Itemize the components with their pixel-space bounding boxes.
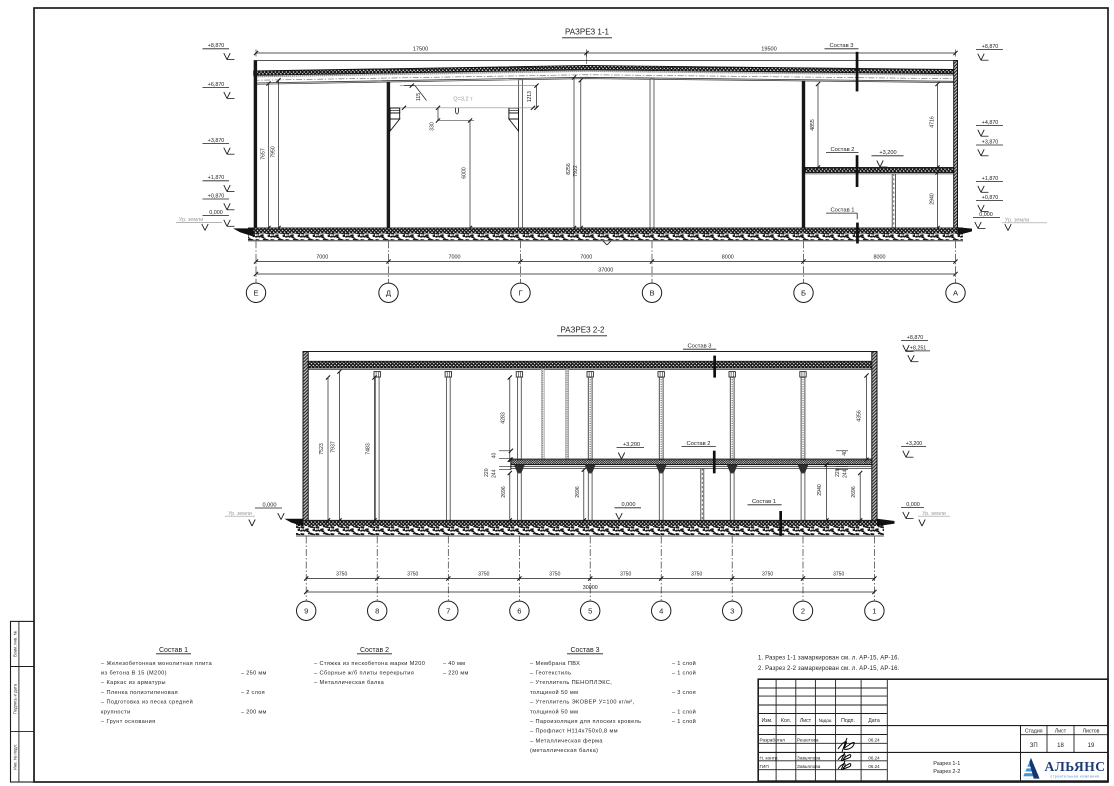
svg-text:+6,870: +6,870	[208, 82, 225, 88]
svg-text:Дата: Дата	[868, 718, 880, 724]
svg-text:8256: 8256	[566, 163, 572, 175]
svg-text:Лист: Лист	[800, 718, 812, 724]
svg-text:18: 18	[1057, 743, 1064, 749]
svg-text:РАЗРЕЗ 2-2: РАЗРЕЗ 2-2	[561, 326, 606, 335]
svg-text:Состав 3: Состав 3	[829, 43, 853, 49]
svg-text:– Металлическая балка: – Металлическая балка	[314, 680, 385, 686]
svg-text:7937: 7937	[331, 441, 337, 453]
svg-text:Подп.: Подп.	[841, 718, 855, 724]
svg-text:– Утеплитель ЭКОВЕР У=100 кг/м: – Утеплитель ЭКОВЕР У=100 кг/м²,	[530, 700, 635, 706]
svg-text:37000: 37000	[598, 268, 613, 274]
svg-text:7523: 7523	[319, 443, 325, 455]
svg-text:Состав 3: Состав 3	[570, 647, 599, 654]
svg-text:1213: 1213	[527, 91, 533, 102]
svg-text:РАЗРЕЗ 1-1: РАЗРЕЗ 1-1	[565, 28, 610, 37]
svg-text:06.24: 06.24	[868, 755, 880, 760]
svg-text:+8,870: +8,870	[208, 43, 225, 49]
svg-text:06.24: 06.24	[868, 738, 880, 743]
svg-text:(металлическая балка): (металлическая балка)	[530, 748, 598, 754]
svg-text:330: 330	[430, 122, 436, 131]
svg-text:строительная компания: строительная компания	[1050, 775, 1099, 779]
svg-text:– Геотекстиль: – Геотекстиль	[530, 671, 571, 677]
svg-text:– 3 слоя: – 3 слоя	[672, 690, 696, 696]
svg-text:2940: 2940	[930, 193, 936, 205]
svg-text:4356: 4356	[857, 410, 863, 422]
svg-text:3750: 3750	[833, 572, 844, 578]
svg-text:Взам. инв. №: Взам. инв. №	[12, 631, 17, 657]
svg-text:2940: 2940	[817, 484, 823, 496]
svg-text:115: 115	[416, 93, 422, 101]
svg-text:Г: Г	[518, 289, 522, 298]
svg-text:Состав 1: Состав 1	[752, 499, 776, 505]
svg-text:– Подготовка из песка средней: – Подготовка из песка средней	[101, 699, 193, 706]
svg-text:19: 19	[1088, 743, 1095, 749]
svg-text:Подпись и дата: Подпись и дата	[12, 683, 17, 714]
svg-text:3: 3	[730, 607, 734, 616]
svg-text:– 2 слоя: – 2 слоя	[241, 690, 265, 696]
svg-text:3750: 3750	[691, 572, 702, 578]
svg-text:2696: 2696	[575, 486, 581, 498]
svg-text:– Металлическая ферма: – Металлическая ферма	[530, 738, 603, 744]
svg-text:№док.: №док.	[818, 718, 832, 724]
svg-text:– Утеплитель ПЕНОПЛЭКС,: – Утеплитель ПЕНОПЛЭКС,	[530, 680, 612, 686]
svg-text:+3,200: +3,200	[906, 441, 923, 447]
svg-text:7483: 7483	[366, 443, 372, 455]
svg-text:Д: Д	[386, 289, 391, 298]
svg-text:Состав 2: Состав 2	[360, 647, 389, 654]
svg-text:19500: 19500	[761, 46, 777, 52]
svg-text:– Мембрана ПВХ: – Мембрана ПВХ	[530, 661, 580, 667]
svg-text:+1,870: +1,870	[208, 175, 225, 181]
svg-text:244: 244	[843, 469, 849, 478]
svg-text:7: 7	[446, 607, 450, 616]
svg-text:Н. контр.: Н. контр.	[760, 755, 779, 760]
svg-text:Завьялова: Завьялова	[797, 755, 821, 760]
svg-text:+0,870: +0,870	[208, 193, 225, 199]
svg-text:Е: Е	[253, 289, 258, 298]
svg-text:Состав 2: Состав 2	[686, 441, 710, 447]
svg-text:Кол.: Кол.	[781, 718, 791, 724]
svg-text:+1,870: +1,870	[982, 176, 999, 182]
svg-text:ЗП: ЗП	[1030, 743, 1038, 749]
svg-text:Состав 1: Состав 1	[159, 647, 188, 654]
svg-text:17500: 17500	[413, 46, 429, 52]
svg-text:0,000: 0,000	[209, 210, 223, 216]
svg-text:– 220 мм: – 220 мм	[443, 671, 469, 677]
svg-text:2696: 2696	[501, 486, 507, 498]
svg-text:+3,870: +3,870	[982, 139, 999, 145]
svg-text:+3,870: +3,870	[208, 138, 225, 144]
svg-text:+0,870: +0,870	[982, 195, 999, 201]
svg-text:Разработал: Разработал	[760, 738, 786, 743]
svg-text:Листов: Листов	[1083, 729, 1100, 735]
svg-text:8000: 8000	[874, 255, 886, 261]
svg-text:2: 2	[801, 607, 805, 616]
svg-text:06.24: 06.24	[868, 764, 880, 769]
svg-text:– Стяжка из пескобетона марки: – Стяжка из пескобетона марки М200	[314, 661, 425, 667]
svg-text:– Сборные ж/б плиты перекрытия: – Сборные ж/б плиты перекрытия	[314, 671, 414, 677]
svg-text:АЛЬЯНС: АЛЬЯНС	[1044, 759, 1105, 774]
svg-text:220: 220	[484, 468, 490, 477]
svg-text:244: 244	[492, 469, 498, 478]
svg-text:Разрез 2-2: Разрез 2-2	[933, 769, 960, 775]
svg-text:8: 8	[375, 607, 379, 616]
svg-text:– Профлист Н114х750х0,8 мм: – Профлист Н114х750х0,8 мм	[530, 729, 618, 735]
svg-text:Состав 2: Состав 2	[830, 147, 854, 153]
svg-text:4: 4	[659, 607, 663, 616]
svg-text:Б: Б	[801, 289, 806, 298]
svg-text:+3,200: +3,200	[879, 150, 896, 156]
svg-text:4283: 4283	[500, 412, 506, 424]
svg-text:2696: 2696	[851, 486, 857, 498]
svg-text:толщиной 50 мм: толщиной 50 мм	[530, 708, 578, 715]
svg-text:1: 1	[872, 607, 876, 616]
svg-text:1. Разрез 1-1 замаркирован см.: 1. Разрез 1-1 замаркирован см. л. АР-15,…	[758, 656, 900, 662]
svg-text:ГИП: ГИП	[760, 764, 769, 769]
svg-text:+8,251: +8,251	[910, 345, 927, 351]
svg-text:Состав 3: Состав 3	[687, 344, 711, 350]
svg-text:3750: 3750	[549, 572, 560, 578]
svg-text:40: 40	[492, 453, 498, 459]
svg-text:7657: 7657	[261, 148, 267, 160]
svg-text:Состав 1: Состав 1	[830, 207, 854, 213]
svg-text:Изм.: Изм.	[761, 718, 772, 724]
svg-text:– Каркас из арматуры: – Каркас из арматуры	[101, 680, 166, 686]
svg-text:– 1 слой: – 1 слой	[672, 718, 696, 725]
svg-text:7922: 7922	[573, 165, 579, 177]
svg-text:9: 9	[304, 607, 308, 616]
svg-text:– 250 мм: – 250 мм	[241, 671, 267, 677]
svg-text:7000: 7000	[316, 255, 328, 261]
svg-text:0,000: 0,000	[622, 502, 636, 508]
svg-text:3750: 3750	[762, 572, 773, 578]
svg-text:Лист: Лист	[1055, 729, 1067, 735]
svg-text:7000: 7000	[449, 255, 461, 261]
svg-text:0,000: 0,000	[263, 502, 277, 508]
svg-text:3750: 3750	[620, 572, 631, 578]
svg-text:– 1 слой: – 1 слой	[672, 670, 696, 677]
svg-text:+3,200: +3,200	[623, 442, 640, 448]
svg-text:– 1 слой: – 1 слой	[672, 660, 696, 667]
svg-text:7000: 7000	[580, 255, 592, 261]
svg-text:0,000: 0,000	[906, 502, 920, 508]
svg-text:Q=3,2 т: Q=3,2 т	[453, 97, 473, 103]
svg-text:Разрез 1-1: Разрез 1-1	[933, 761, 960, 767]
svg-text:3750: 3750	[407, 572, 418, 578]
svg-text:7950: 7950	[271, 146, 277, 158]
svg-text:30000: 30000	[583, 585, 598, 591]
svg-text:5: 5	[588, 607, 592, 616]
svg-text:– Пароизоляция для плоских кро: – Пароизоляция для плоских кровель	[530, 719, 641, 725]
svg-text:из бетона В 15 (М200): из бетона В 15 (М200)	[101, 671, 167, 677]
svg-text:толщиной 50 мм: толщиной 50 мм	[530, 689, 578, 696]
svg-text:0,000: 0,000	[979, 212, 993, 218]
svg-text:– Железобетонная монолитная п: – Железобетонная монолитная плита	[101, 661, 213, 667]
svg-text:– 1 слой: – 1 слой	[672, 708, 696, 715]
svg-text:– Пленка полиэтиленовая: – Пленка полиэтиленовая	[101, 690, 178, 696]
svg-text:4855: 4855	[810, 119, 816, 131]
svg-text:3750: 3750	[336, 572, 347, 578]
svg-text:8000: 8000	[722, 255, 734, 261]
svg-text:– 200 мм: – 200 мм	[241, 709, 267, 715]
svg-text:+8,870: +8,870	[907, 335, 924, 341]
svg-text:+8,870: +8,870	[982, 44, 999, 50]
svg-text:Стадия: Стадия	[1025, 729, 1043, 735]
svg-text:4716: 4716	[930, 116, 936, 128]
svg-text:3750: 3750	[478, 572, 489, 578]
svg-text:Решетова: Решетова	[797, 738, 819, 743]
svg-text:– 40 мм: – 40 мм	[443, 661, 465, 667]
svg-text:+4,870: +4,870	[982, 120, 999, 126]
svg-text:– Грунт основания: – Грунт основания	[101, 719, 156, 725]
svg-text:крупности: крупности	[101, 709, 131, 715]
svg-text:В: В	[649, 289, 654, 298]
svg-text:6000: 6000	[462, 167, 468, 179]
svg-text:2. Разрез 2-2 замаркирован см.: 2. Разрез 2-2 замаркирован см. л. АР-15,…	[758, 666, 900, 672]
svg-text:Завьялова: Завьялова	[797, 764, 821, 769]
svg-text:Инв. № подл.: Инв. № подл.	[12, 744, 17, 770]
svg-text:6: 6	[517, 607, 521, 616]
